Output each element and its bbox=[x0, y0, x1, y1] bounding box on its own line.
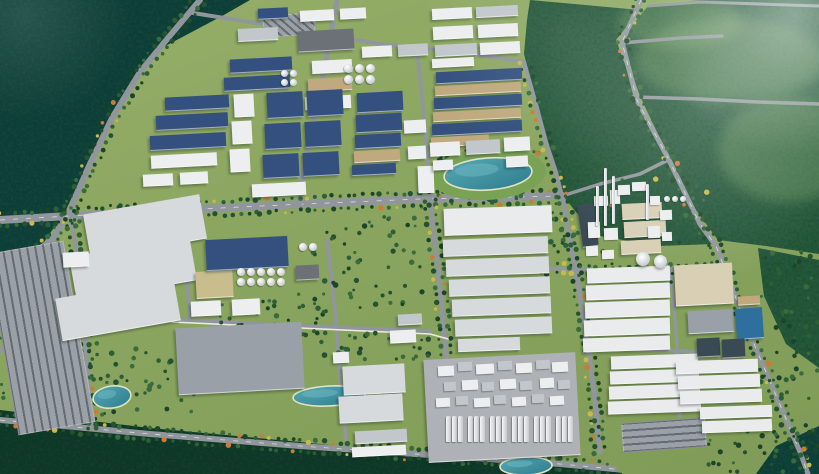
tree bbox=[131, 356, 136, 361]
tree bbox=[569, 264, 572, 267]
tree bbox=[325, 231, 328, 234]
tree bbox=[65, 200, 68, 203]
tree bbox=[6, 211, 9, 214]
tree bbox=[527, 91, 532, 96]
tree bbox=[88, 349, 91, 352]
storage-silo bbox=[480, 416, 485, 442]
tree bbox=[549, 171, 553, 175]
tree bbox=[401, 302, 405, 306]
tree bbox=[185, 6, 188, 9]
tree bbox=[135, 68, 139, 72]
tree bbox=[574, 242, 577, 245]
tree bbox=[642, 103, 645, 106]
tree bbox=[143, 425, 148, 430]
building bbox=[586, 283, 670, 301]
tree bbox=[548, 239, 554, 245]
tree bbox=[735, 470, 739, 474]
tree bbox=[420, 339, 423, 342]
tree bbox=[86, 427, 90, 431]
tree bbox=[784, 309, 789, 314]
tree bbox=[446, 308, 451, 313]
tree bbox=[87, 206, 91, 210]
tree bbox=[362, 223, 367, 228]
tree bbox=[103, 423, 107, 427]
tree bbox=[23, 210, 27, 214]
storage-silo bbox=[540, 416, 545, 442]
tree bbox=[339, 195, 342, 198]
building bbox=[266, 91, 303, 119]
tree bbox=[187, 18, 192, 23]
tree bbox=[100, 129, 104, 133]
tree bbox=[711, 461, 716, 466]
tree bbox=[344, 227, 347, 230]
tree bbox=[581, 468, 586, 473]
building bbox=[433, 159, 453, 170]
plant-structure bbox=[650, 196, 660, 205]
tree bbox=[603, 445, 607, 449]
tree bbox=[194, 13, 197, 16]
tree bbox=[94, 410, 99, 415]
building bbox=[452, 296, 552, 316]
tree bbox=[298, 438, 302, 442]
tree bbox=[559, 176, 563, 180]
tree bbox=[170, 40, 173, 43]
tree bbox=[267, 210, 272, 215]
building bbox=[238, 27, 279, 42]
tree bbox=[331, 443, 334, 446]
tree bbox=[124, 435, 130, 441]
tree bbox=[99, 377, 103, 381]
tree bbox=[813, 449, 818, 454]
tree bbox=[1, 396, 5, 400]
tree bbox=[431, 277, 435, 281]
tree bbox=[228, 316, 232, 320]
tree bbox=[219, 315, 222, 318]
tree bbox=[106, 112, 111, 117]
tree bbox=[777, 271, 782, 276]
tree bbox=[438, 237, 442, 241]
tree bbox=[702, 236, 707, 241]
tree bbox=[554, 154, 558, 158]
tree bbox=[435, 317, 440, 322]
tree bbox=[589, 420, 592, 423]
tree bbox=[115, 434, 120, 439]
tree bbox=[412, 216, 417, 221]
tree bbox=[426, 238, 430, 242]
tree bbox=[515, 197, 519, 201]
tree bbox=[195, 442, 199, 446]
tree bbox=[53, 206, 58, 211]
tree bbox=[769, 395, 774, 400]
tree bbox=[589, 428, 595, 434]
tree bbox=[563, 235, 566, 238]
tree bbox=[182, 25, 186, 29]
tree bbox=[568, 242, 573, 247]
tree bbox=[576, 327, 581, 332]
tree bbox=[257, 211, 262, 216]
tree bbox=[101, 148, 106, 153]
tree bbox=[675, 161, 680, 166]
tree bbox=[62, 204, 66, 208]
tree bbox=[172, 18, 177, 23]
storage-silo bbox=[518, 416, 523, 442]
tree bbox=[584, 357, 589, 362]
tree bbox=[467, 462, 471, 466]
tree bbox=[702, 226, 706, 230]
tree bbox=[171, 428, 175, 432]
tree bbox=[698, 232, 701, 235]
tree bbox=[313, 452, 317, 456]
process-unit bbox=[552, 362, 569, 373]
tree bbox=[15, 223, 19, 227]
tree bbox=[807, 296, 810, 299]
tree bbox=[586, 387, 591, 392]
tree bbox=[598, 388, 602, 392]
tree bbox=[321, 451, 326, 456]
tree bbox=[804, 284, 809, 289]
tree bbox=[775, 384, 779, 388]
tree bbox=[212, 433, 215, 436]
tree bbox=[69, 206, 72, 209]
tree bbox=[651, 136, 654, 139]
tree bbox=[709, 246, 712, 249]
tree bbox=[655, 124, 658, 127]
tree bbox=[231, 213, 236, 218]
tree bbox=[155, 57, 159, 61]
tree bbox=[298, 306, 302, 310]
tree bbox=[535, 126, 540, 131]
tree bbox=[340, 346, 344, 350]
tree bbox=[633, 100, 636, 103]
tree bbox=[412, 250, 416, 254]
tree bbox=[592, 418, 597, 423]
tree bbox=[758, 444, 763, 449]
tree bbox=[93, 163, 97, 167]
tree bbox=[435, 213, 438, 216]
building bbox=[205, 236, 289, 271]
tree bbox=[30, 211, 34, 215]
tree bbox=[527, 60, 530, 63]
tree bbox=[792, 435, 795, 438]
tree bbox=[95, 207, 98, 210]
southeast-parking-lot bbox=[621, 417, 707, 453]
tree bbox=[717, 462, 721, 466]
tree bbox=[90, 387, 94, 391]
tree bbox=[762, 275, 767, 280]
tree bbox=[703, 219, 707, 223]
tree bbox=[580, 277, 584, 281]
storage-silo bbox=[512, 416, 517, 442]
tree bbox=[538, 188, 543, 193]
tree bbox=[53, 226, 56, 229]
tree bbox=[135, 86, 139, 90]
tree bbox=[430, 255, 435, 260]
tree bbox=[106, 374, 110, 378]
tree bbox=[138, 64, 142, 68]
storage-tank bbox=[355, 64, 364, 73]
tree bbox=[5, 424, 8, 427]
tree bbox=[789, 310, 793, 314]
tree bbox=[595, 365, 598, 368]
tree bbox=[189, 410, 193, 414]
tree bbox=[314, 321, 318, 325]
tree bbox=[273, 197, 278, 202]
tree bbox=[331, 207, 336, 212]
tree bbox=[239, 212, 243, 216]
tree bbox=[531, 74, 536, 79]
tree bbox=[87, 432, 91, 436]
tree bbox=[269, 448, 273, 452]
tree bbox=[361, 205, 365, 209]
tree bbox=[711, 252, 715, 256]
tree bbox=[545, 157, 548, 160]
tree bbox=[418, 346, 422, 350]
storage-silo bbox=[496, 416, 501, 442]
tree bbox=[370, 205, 374, 209]
tree bbox=[143, 391, 146, 394]
tree bbox=[122, 89, 125, 92]
tree bbox=[695, 184, 699, 188]
tree bbox=[330, 237, 334, 241]
tree bbox=[148, 426, 152, 430]
tree bbox=[591, 459, 594, 462]
building bbox=[587, 266, 670, 284]
storage-silo bbox=[490, 416, 495, 442]
tree bbox=[670, 154, 676, 160]
tree bbox=[631, 54, 634, 57]
tree bbox=[690, 190, 694, 194]
tree bbox=[152, 44, 157, 49]
building bbox=[180, 171, 209, 184]
tree bbox=[600, 428, 604, 432]
tree bbox=[435, 222, 439, 226]
tree bbox=[691, 196, 695, 200]
tree bbox=[749, 346, 753, 350]
tree bbox=[90, 357, 94, 361]
tree bbox=[685, 181, 690, 186]
tree bbox=[408, 456, 413, 461]
tree bbox=[378, 205, 383, 210]
storage-silo bbox=[562, 416, 567, 442]
tree bbox=[419, 289, 424, 294]
tree bbox=[69, 194, 72, 197]
tree bbox=[101, 121, 105, 125]
tree bbox=[395, 357, 398, 360]
tree bbox=[260, 434, 264, 438]
tree bbox=[562, 261, 567, 266]
tree bbox=[528, 103, 532, 107]
tree bbox=[205, 200, 208, 203]
tree bbox=[435, 292, 439, 296]
tree bbox=[45, 234, 50, 239]
tree bbox=[783, 431, 787, 435]
tree bbox=[245, 197, 249, 201]
tree bbox=[635, 106, 641, 112]
tree bbox=[396, 206, 399, 209]
tree bbox=[274, 313, 279, 318]
tree bbox=[388, 216, 391, 219]
tree bbox=[630, 10, 633, 13]
tree bbox=[402, 248, 406, 252]
tree bbox=[260, 447, 264, 451]
tree bbox=[402, 193, 406, 197]
tree bbox=[774, 432, 778, 436]
plant-structure bbox=[660, 210, 672, 220]
tree bbox=[59, 231, 62, 234]
tree bbox=[763, 451, 767, 455]
tree bbox=[795, 438, 799, 442]
tree bbox=[254, 436, 258, 440]
storage-tank bbox=[267, 268, 275, 276]
tree bbox=[576, 304, 579, 307]
tree bbox=[72, 184, 77, 189]
tree bbox=[743, 450, 747, 454]
tree bbox=[435, 206, 439, 210]
tree bbox=[676, 222, 679, 225]
tree bbox=[149, 64, 153, 68]
building bbox=[264, 122, 301, 150]
building bbox=[722, 338, 746, 358]
tree bbox=[268, 299, 272, 303]
tree bbox=[593, 356, 597, 360]
tree bbox=[539, 135, 542, 138]
tree bbox=[584, 364, 590, 370]
tree bbox=[331, 281, 335, 285]
storage-tank bbox=[281, 70, 288, 77]
tree bbox=[226, 442, 232, 448]
tree bbox=[759, 348, 763, 352]
building bbox=[735, 307, 764, 340]
tree bbox=[111, 100, 116, 105]
tree bbox=[365, 332, 370, 337]
tree bbox=[157, 384, 162, 389]
tree bbox=[563, 217, 568, 222]
tree bbox=[785, 390, 789, 394]
tree bbox=[5, 224, 10, 229]
tree bbox=[113, 362, 118, 367]
tree bbox=[459, 204, 462, 207]
tree bbox=[807, 352, 811, 356]
storage-tank bbox=[257, 268, 265, 276]
tree bbox=[88, 175, 91, 178]
plant-structure bbox=[662, 232, 672, 241]
chimney-stack bbox=[604, 168, 607, 226]
building bbox=[738, 295, 760, 305]
tree bbox=[189, 431, 192, 434]
tree bbox=[805, 455, 809, 459]
tree bbox=[86, 342, 91, 347]
tree bbox=[63, 217, 68, 222]
tree bbox=[557, 201, 562, 206]
tree bbox=[73, 218, 76, 221]
tree bbox=[687, 186, 690, 189]
tree bbox=[801, 469, 805, 473]
tree bbox=[322, 352, 328, 358]
tree bbox=[343, 242, 346, 245]
tree bbox=[448, 328, 451, 331]
tree bbox=[373, 302, 378, 307]
tree bbox=[105, 381, 108, 384]
tree bbox=[109, 204, 112, 207]
building bbox=[476, 5, 519, 18]
tree bbox=[787, 437, 792, 442]
building bbox=[304, 120, 341, 148]
tree bbox=[573, 458, 577, 462]
tree bbox=[77, 207, 80, 210]
tree bbox=[228, 433, 231, 436]
tree bbox=[658, 132, 662, 136]
building bbox=[430, 141, 461, 157]
building bbox=[191, 300, 222, 317]
tree bbox=[638, 85, 643, 90]
tree bbox=[565, 232, 570, 237]
tree bbox=[161, 52, 165, 56]
tree bbox=[277, 437, 281, 441]
tree bbox=[142, 59, 146, 63]
storage-tank bbox=[277, 268, 285, 276]
storage-silo bbox=[446, 416, 451, 442]
tree bbox=[237, 434, 241, 438]
tree bbox=[141, 437, 145, 441]
tree bbox=[792, 354, 796, 358]
tree bbox=[315, 306, 320, 311]
tree bbox=[566, 458, 569, 461]
tree bbox=[336, 451, 341, 456]
tree bbox=[322, 278, 328, 284]
tree bbox=[426, 337, 431, 342]
storage-tank bbox=[290, 79, 297, 86]
tree bbox=[534, 81, 538, 85]
building bbox=[458, 337, 520, 352]
tree bbox=[126, 81, 129, 84]
building bbox=[63, 251, 90, 267]
tree bbox=[168, 358, 173, 363]
tree bbox=[758, 368, 762, 372]
tree bbox=[606, 463, 609, 466]
tree bbox=[236, 444, 240, 448]
tree bbox=[88, 149, 93, 154]
tree bbox=[71, 222, 74, 225]
storage-silo bbox=[452, 416, 457, 442]
tree bbox=[558, 468, 562, 472]
tree bbox=[6, 414, 9, 417]
tree bbox=[347, 206, 351, 210]
tree bbox=[115, 120, 118, 123]
tree bbox=[449, 199, 454, 204]
tree bbox=[73, 223, 78, 228]
tree bbox=[791, 458, 796, 463]
tree bbox=[187, 441, 190, 444]
tree bbox=[155, 437, 159, 441]
tree bbox=[386, 192, 389, 195]
building bbox=[449, 276, 551, 297]
tree bbox=[355, 259, 360, 264]
tree bbox=[810, 441, 813, 444]
tree bbox=[756, 340, 759, 343]
tree bbox=[77, 219, 82, 224]
tree bbox=[534, 118, 538, 122]
tree bbox=[313, 302, 316, 305]
tree bbox=[803, 346, 808, 351]
tree bbox=[547, 201, 550, 204]
tree bbox=[702, 199, 705, 202]
process-unit bbox=[494, 395, 506, 405]
tree bbox=[100, 156, 103, 159]
tree bbox=[162, 437, 167, 442]
tree bbox=[425, 216, 429, 220]
building bbox=[390, 329, 417, 343]
tree bbox=[467, 202, 472, 207]
